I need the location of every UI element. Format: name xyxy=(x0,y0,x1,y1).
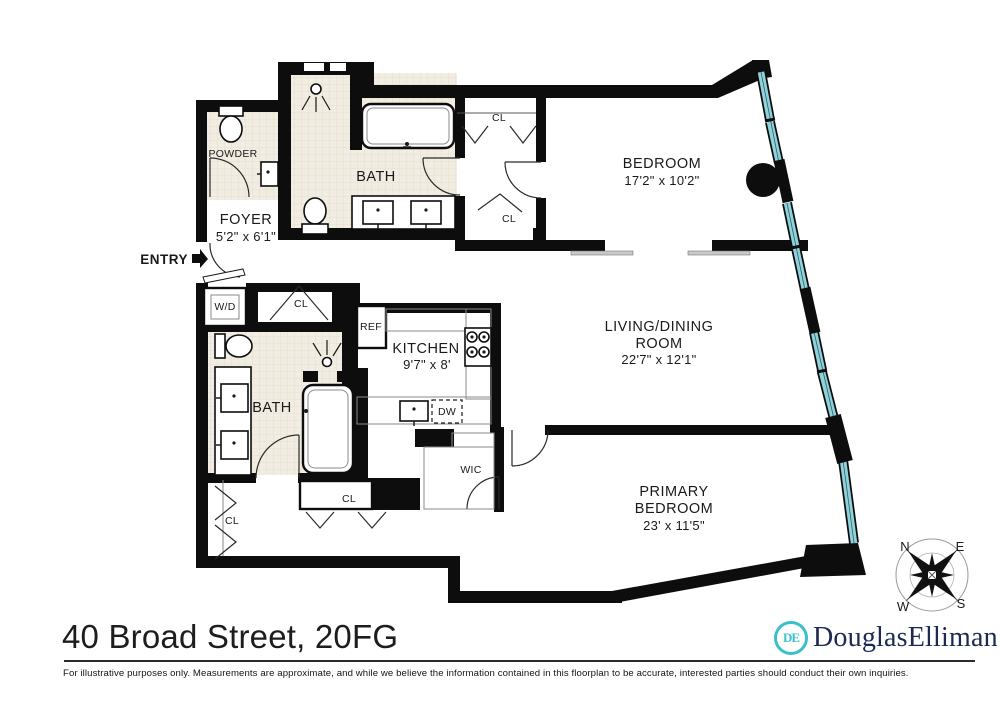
primary-dims: 23' x 11'5" xyxy=(643,518,705,533)
footer-rule xyxy=(64,660,975,662)
page-title: 40 Broad Street, 20FG xyxy=(62,618,398,656)
living-label-line2: ROOM xyxy=(635,336,682,352)
living-dims: 22'7" x 12'1" xyxy=(621,352,696,367)
living-label-line1: LIVING/DINING xyxy=(605,319,714,335)
primary-label-line1: PRIMARY xyxy=(639,484,708,500)
closet-label-bedroom-hall-upper: CL xyxy=(492,112,506,124)
toilet-powder xyxy=(219,106,243,142)
foyer-label: FOYER xyxy=(220,212,272,228)
wic-label: WIC xyxy=(460,464,481,476)
floorplan-drawing: POWDER FOYER 5'2" x 6'1" BATH CL CL BEDR… xyxy=(0,0,1000,620)
wd-label: W/D xyxy=(214,301,235,313)
pocket-door-sills xyxy=(571,251,750,255)
kitchen-sink xyxy=(400,401,428,426)
closet-label-foyer: CL xyxy=(294,298,308,310)
compass-rose: N E W S xyxy=(896,539,968,614)
closet-label-lower-hall-v: CL xyxy=(225,515,239,527)
primary-label-line2: BEDROOM xyxy=(635,501,713,517)
disclaimer-text: For illustrative purposes only. Measurem… xyxy=(63,668,978,679)
double-vanity-upper xyxy=(352,196,455,229)
floorplan-page: POWDER FOYER 5'2" x 6'1" BATH CL CL BEDR… xyxy=(0,0,1000,706)
compass-s-label: S xyxy=(957,596,966,611)
foyer-dims: 5'2" x 6'1" xyxy=(216,229,276,244)
compass-e-label: E xyxy=(956,539,965,554)
bedroom-label: BEDROOM xyxy=(623,156,701,172)
brand-monogram-text: DE xyxy=(783,630,799,646)
entry-label: ENTRY xyxy=(140,252,188,267)
compass-w-label: W xyxy=(897,599,910,614)
kitchen-dims: 9'7" x 8' xyxy=(403,357,451,372)
bathtub-lower xyxy=(303,385,353,473)
bath-lower-label: BATH xyxy=(252,400,292,416)
brand-name: DouglasElliman xyxy=(813,622,998,654)
closet-label-bedroom-hall-lower: CL xyxy=(502,213,516,225)
brand-logo: DE DouglasElliman xyxy=(774,621,998,655)
brand-monogram-icon: DE xyxy=(774,621,808,655)
column xyxy=(746,163,780,197)
bedroom-dims: 17'2" x 10'2" xyxy=(624,173,699,188)
toilet-upper-bath xyxy=(302,198,328,234)
kitchen-label: KITCHEN xyxy=(392,341,459,357)
closet-label-lower-hall-h: CL xyxy=(342,493,356,505)
compass-n-label: N xyxy=(900,539,909,554)
toilet-lower-bath xyxy=(215,334,252,358)
powder-label: POWDER xyxy=(208,148,257,160)
bath-upper-label: BATH xyxy=(356,169,396,185)
dw-label: DW xyxy=(438,406,456,418)
entry-arrow-icon xyxy=(192,249,208,268)
ref-label: REF xyxy=(360,321,382,333)
window-wall-solids xyxy=(765,119,850,462)
window-wall xyxy=(761,72,854,543)
stove-burners xyxy=(465,328,491,366)
closet-box-lower-hall xyxy=(300,481,372,509)
bathtub-upper xyxy=(362,104,454,148)
vanity-lower xyxy=(215,367,251,475)
